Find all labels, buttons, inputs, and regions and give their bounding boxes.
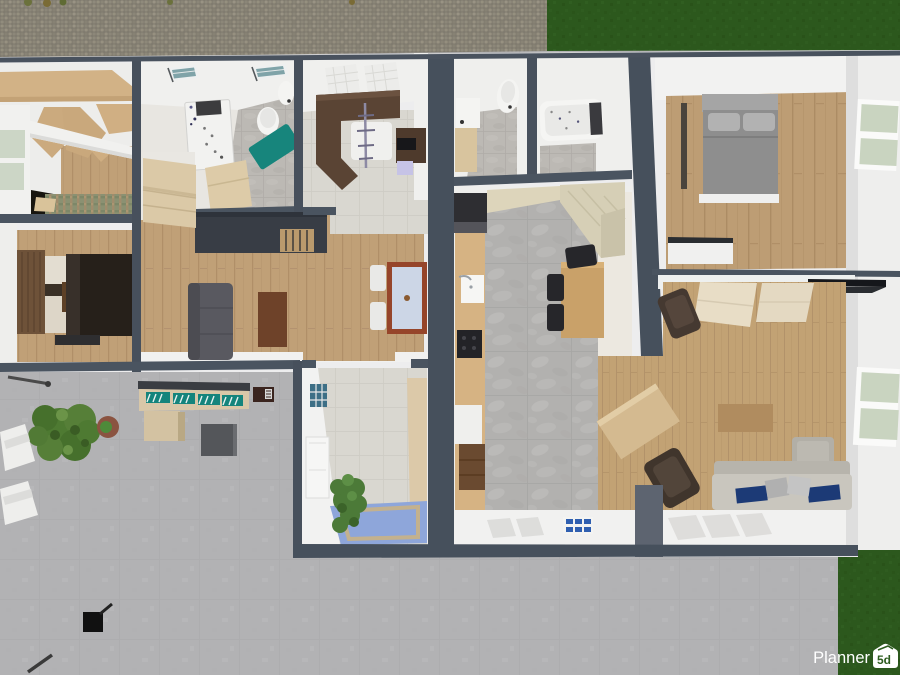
svg-text:Planner: Planner bbox=[813, 649, 870, 667]
svg-text:5d: 5d bbox=[877, 653, 891, 667]
